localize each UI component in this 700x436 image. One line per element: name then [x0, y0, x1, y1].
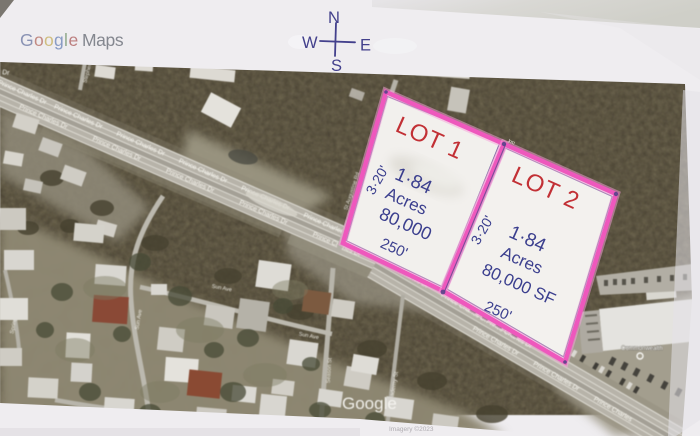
svg-text:G: G: [20, 30, 33, 50]
svg-text:S: S: [331, 57, 342, 75]
svg-text:e: e: [69, 30, 78, 50]
svg-text:Commonwealth: Commonwealth: [621, 346, 663, 352]
svg-text:Google: Google: [342, 394, 397, 413]
svg-text:l: l: [64, 30, 68, 50]
svg-text:N: N: [328, 9, 340, 27]
svg-text:o: o: [34, 30, 43, 50]
svg-text:g: g: [54, 30, 63, 50]
svg-text:Imagery ©2023: Imagery ©2023: [389, 425, 434, 433]
svg-text:E: E: [360, 37, 371, 55]
svg-text:W: W: [302, 34, 318, 52]
svg-text:Maps: Maps: [82, 30, 124, 50]
svg-text:o: o: [44, 30, 53, 50]
